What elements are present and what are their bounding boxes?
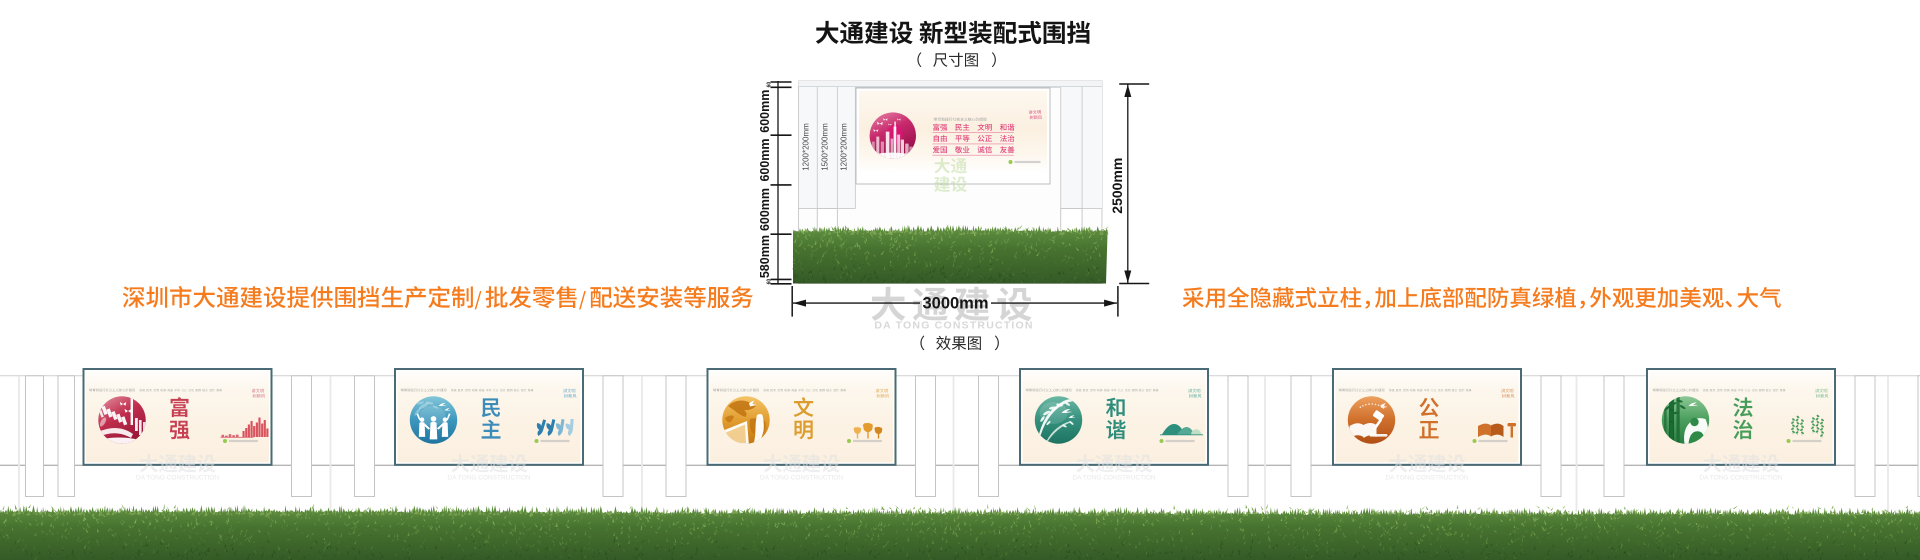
svg-text:2500mm: 2500mm (1109, 158, 1125, 214)
svg-text:1200*200mm: 1200*200mm (840, 123, 849, 171)
svg-text:600mm: 600mm (758, 90, 772, 133)
svg-text:60: 60 (767, 279, 773, 285)
svg-text:600mm: 600mm (758, 188, 772, 231)
svg-text:1200*200mm: 1200*200mm (801, 123, 810, 171)
svg-text:60: 60 (767, 82, 773, 88)
svg-text:1500*200mm: 1500*200mm (821, 123, 830, 171)
svg-text:DA TONG CONSTRUCTION: DA TONG CONSTRUCTION (874, 319, 1033, 331)
svg-text:3000mm: 3000mm (922, 295, 988, 313)
svg-text:580mm: 580mm (758, 235, 772, 278)
svg-text:600mm: 600mm (758, 138, 772, 181)
